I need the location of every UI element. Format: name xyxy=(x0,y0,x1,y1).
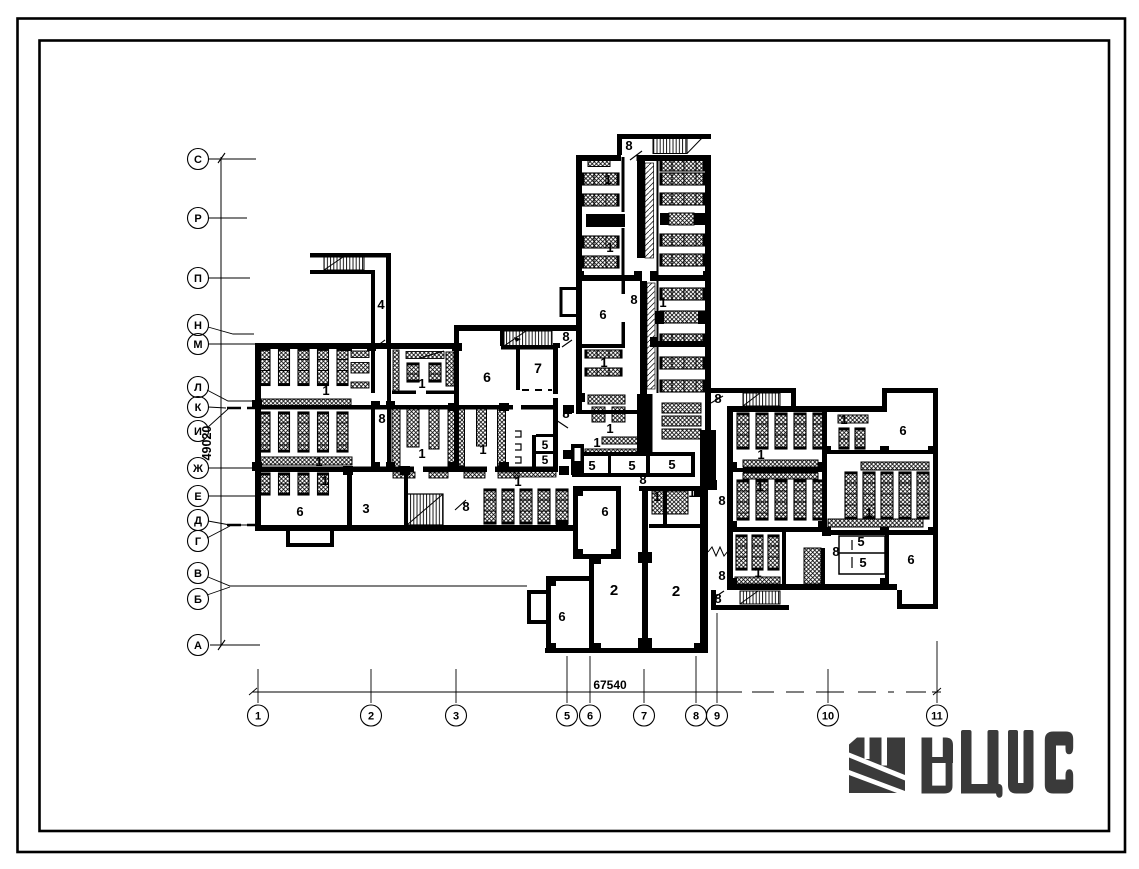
svg-text:5: 5 xyxy=(857,534,864,549)
svg-text:1: 1 xyxy=(322,383,329,398)
svg-text:П: П xyxy=(194,273,202,285)
svg-text:49020: 49020 xyxy=(200,426,214,461)
svg-text:5: 5 xyxy=(859,555,866,570)
svg-text:7: 7 xyxy=(534,360,542,376)
svg-text:Ж: Ж xyxy=(192,463,203,475)
svg-text:8: 8 xyxy=(718,568,725,583)
svg-text:6: 6 xyxy=(587,710,593,722)
svg-text:1: 1 xyxy=(321,473,328,488)
svg-text:Г: Г xyxy=(195,536,202,548)
svg-text:Л: Л xyxy=(194,382,202,394)
svg-text:1: 1 xyxy=(479,442,486,457)
svg-text:8: 8 xyxy=(630,292,637,307)
svg-text:8: 8 xyxy=(625,138,632,153)
svg-text:5: 5 xyxy=(668,457,675,472)
svg-text:1: 1 xyxy=(604,172,611,187)
svg-text:8: 8 xyxy=(832,544,839,559)
svg-text:1: 1 xyxy=(255,710,261,722)
svg-text:Д: Д xyxy=(194,515,202,527)
svg-text:6: 6 xyxy=(599,307,606,322)
svg-text:5: 5 xyxy=(564,710,570,722)
svg-text:Е: Е xyxy=(194,491,201,503)
svg-text:1: 1 xyxy=(600,355,607,370)
svg-text:1: 1 xyxy=(606,240,613,255)
svg-text:5: 5 xyxy=(628,458,635,473)
svg-text:1: 1 xyxy=(653,489,660,504)
svg-text:6: 6 xyxy=(483,369,491,385)
svg-text:К: К xyxy=(195,402,202,414)
svg-text:1: 1 xyxy=(840,412,847,427)
svg-text:1: 1 xyxy=(865,505,872,520)
svg-text:7: 7 xyxy=(641,710,647,722)
svg-text:5: 5 xyxy=(588,458,595,473)
svg-text:Б: Б xyxy=(194,594,202,606)
svg-text:6: 6 xyxy=(899,423,906,438)
svg-text:2: 2 xyxy=(610,582,618,599)
svg-text:А: А xyxy=(194,640,202,652)
svg-text:5: 5 xyxy=(542,453,549,467)
svg-text:1: 1 xyxy=(418,376,425,391)
svg-text:Р: Р xyxy=(194,213,201,225)
svg-text:В: В xyxy=(194,568,202,580)
svg-text:11: 11 xyxy=(931,710,943,722)
svg-text:9: 9 xyxy=(714,710,720,722)
svg-text:6: 6 xyxy=(296,504,303,519)
svg-text:6: 6 xyxy=(558,609,565,624)
svg-text:6: 6 xyxy=(601,504,608,519)
svg-text:8: 8 xyxy=(378,411,385,426)
svg-text:1: 1 xyxy=(756,479,763,494)
svg-text:Н: Н xyxy=(194,320,202,332)
svg-text:8: 8 xyxy=(718,493,725,508)
svg-text:8: 8 xyxy=(562,329,569,344)
svg-text:8: 8 xyxy=(462,499,469,514)
svg-text:1: 1 xyxy=(606,421,613,436)
svg-text:1: 1 xyxy=(593,435,600,450)
svg-text:С: С xyxy=(194,154,202,166)
svg-text:2: 2 xyxy=(672,583,680,600)
svg-text:2: 2 xyxy=(368,710,374,722)
svg-text:3: 3 xyxy=(362,501,369,516)
svg-text:8: 8 xyxy=(639,472,646,487)
svg-text:М: М xyxy=(193,339,202,351)
svg-text:1: 1 xyxy=(754,565,761,580)
svg-text:1: 1 xyxy=(315,454,322,469)
svg-text:1: 1 xyxy=(688,485,695,500)
svg-text:5: 5 xyxy=(542,438,549,452)
svg-text:1: 1 xyxy=(418,446,425,461)
svg-text:67540: 67540 xyxy=(593,678,627,692)
svg-text:1: 1 xyxy=(659,295,666,310)
svg-text:6: 6 xyxy=(907,552,914,567)
svg-text:4: 4 xyxy=(377,297,385,312)
svg-text:8: 8 xyxy=(693,710,699,722)
svg-text:1: 1 xyxy=(757,447,764,462)
svg-text:10: 10 xyxy=(822,710,834,722)
svg-text:3: 3 xyxy=(453,710,459,722)
